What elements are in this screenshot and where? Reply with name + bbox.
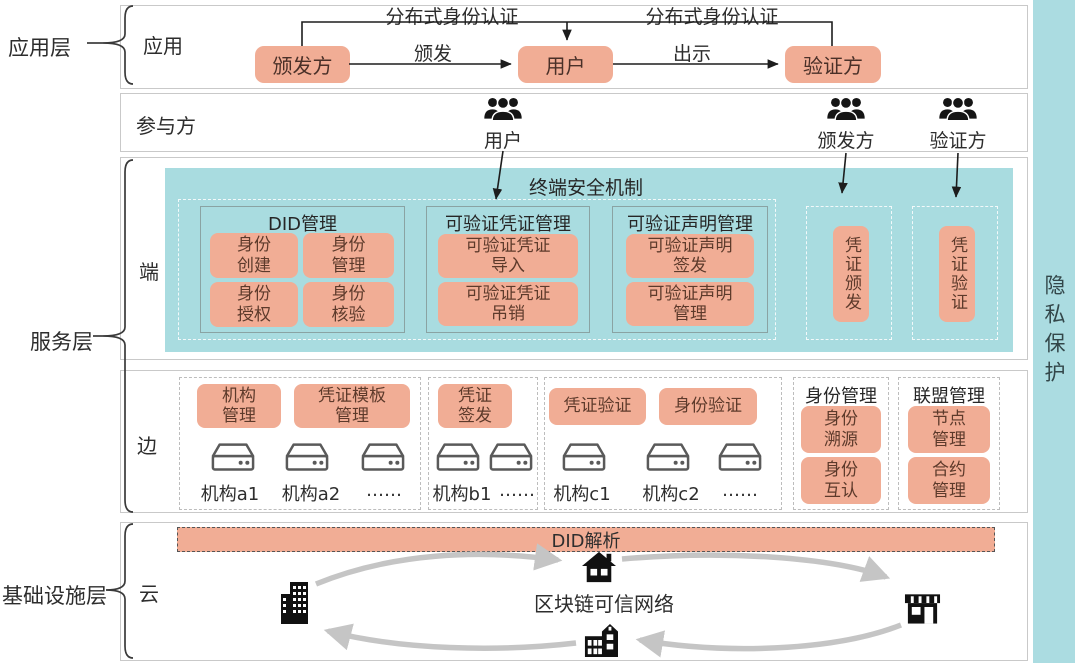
present-arrow-label: 出示 bbox=[662, 39, 722, 66]
server-label: …… bbox=[339, 480, 429, 501]
vc-management-title: 可验证凭证管理 bbox=[426, 210, 590, 236]
server-label: 机构a1 bbox=[185, 480, 275, 506]
participants-row-label: 参与方 bbox=[136, 110, 196, 139]
credential-issue-pill: 凭证颁发 bbox=[833, 226, 869, 322]
school-building-icon bbox=[584, 622, 618, 658]
blockchain-network-label: 区块链可信网络 bbox=[504, 588, 704, 617]
server-icon bbox=[718, 440, 762, 476]
auth-label-right: 分布式身份认证 bbox=[612, 2, 812, 29]
issuer-node: 颁发方 bbox=[255, 46, 350, 83]
node-manage-pill: 节点 管理 bbox=[908, 406, 990, 453]
office-building-icon bbox=[280, 580, 310, 624]
server-icon bbox=[562, 440, 606, 476]
server-label: 机构c1 bbox=[537, 480, 627, 506]
house-icon bbox=[582, 551, 616, 583]
credential-verify-edge-pill: 凭证验证 bbox=[549, 388, 646, 425]
identity-trace-pill: 身份 溯源 bbox=[801, 406, 881, 453]
vp-issue-pill: 可验证声明 签发 bbox=[626, 234, 754, 278]
identity-verify-edge-pill: 身份验证 bbox=[659, 388, 757, 425]
cloud-row-label: 云 bbox=[139, 578, 159, 607]
participant-verifier-label: 验证方 bbox=[918, 126, 998, 153]
participants-row bbox=[120, 93, 1028, 152]
identity-mutual-pill: 身份 互认 bbox=[801, 457, 881, 504]
contract-manage-pill: 合约 管理 bbox=[908, 457, 990, 504]
store-icon bbox=[904, 590, 941, 624]
vp-management-title: 可验证声明管理 bbox=[612, 210, 768, 236]
did-architecture-diagram: 应用层 服务层 基础设施层 应用 参与方 端 边 云 分布式身份认证 分布式身份… bbox=[0, 0, 1080, 663]
server-icon bbox=[285, 440, 329, 476]
privacy-strip-label: 隐私保护 bbox=[1039, 274, 1069, 390]
org-manage-pill: 机构 管理 bbox=[197, 384, 281, 428]
identity-manage-pill: 身份 管理 bbox=[303, 233, 394, 278]
layer-label-service: 服务层 bbox=[30, 326, 93, 356]
user-node: 用户 bbox=[518, 46, 613, 83]
participant-issuer-label: 颁发方 bbox=[806, 126, 886, 153]
layer-label-application: 应用层 bbox=[8, 32, 71, 62]
terminal-security-title: 终端安全机制 bbox=[486, 173, 686, 200]
server-icon bbox=[436, 440, 480, 476]
credential-verify-pill: 凭证验证 bbox=[939, 226, 975, 322]
identity-management-title: 身份管理 bbox=[793, 382, 889, 408]
credential-template-pill: 凭证模板 管理 bbox=[294, 384, 410, 428]
identity-authorize-pill: 身份 授权 bbox=[210, 282, 298, 327]
vp-manage-pill: 可验证声明 管理 bbox=[626, 282, 754, 326]
credential-sign-pill: 凭证 签发 bbox=[438, 384, 512, 428]
privacy-strip: 隐私保护 bbox=[1033, 0, 1075, 663]
edge-row-label: 边 bbox=[137, 430, 157, 459]
identity-create-pill: 身份 创建 bbox=[210, 233, 298, 278]
federation-management-title: 联盟管理 bbox=[898, 382, 1000, 408]
server-icon bbox=[646, 440, 690, 476]
user-people-icon bbox=[483, 95, 523, 123]
verifier-people-icon bbox=[938, 95, 978, 123]
server-icon bbox=[361, 440, 405, 476]
issuer-people-icon bbox=[826, 95, 866, 123]
issue-arrow-label: 颁发 bbox=[403, 39, 463, 66]
terminal-row-label: 端 bbox=[139, 256, 159, 285]
server-label: …… bbox=[695, 480, 785, 501]
vc-revoke-pill: 可验证凭证 吊销 bbox=[438, 282, 578, 326]
server-icon bbox=[211, 440, 255, 476]
participant-user-label: 用户 bbox=[473, 126, 533, 153]
layer-label-infrastructure: 基础设施层 bbox=[2, 580, 107, 610]
identity-verify-pill: 身份 核验 bbox=[303, 282, 394, 327]
server-icon bbox=[489, 440, 533, 476]
verifier-node: 验证方 bbox=[785, 46, 881, 83]
vc-import-pill: 可验证凭证 导入 bbox=[438, 234, 578, 278]
auth-label-left: 分布式身份认证 bbox=[352, 2, 552, 29]
did-resolution-bar: DID解析 bbox=[177, 527, 995, 552]
application-row-label: 应用 bbox=[143, 30, 183, 59]
